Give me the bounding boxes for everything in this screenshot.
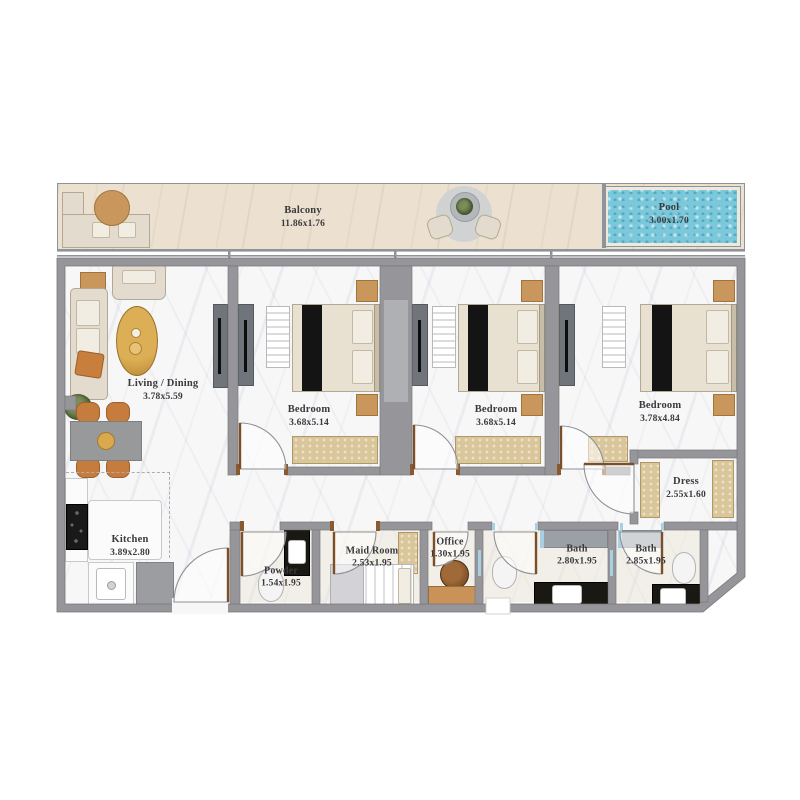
entry-door-arc: [174, 548, 228, 602]
room-label-kitchen: Kitchen 3.89x2.80: [110, 533, 150, 559]
balcony-window-band: [57, 184, 745, 258]
bedroom1-door-arc: [240, 423, 286, 469]
floor-plan-canvas: Balcony 11.86x1.76 Pool 3.00x1.70 Living…: [0, 0, 800, 800]
dress-door-arc: [584, 464, 634, 514]
room-label-bath-2: Bath 2.85x1.95: [626, 542, 666, 567]
bedroom2-door-arc: [414, 425, 458, 469]
room-label-balcony: Balcony 11.86x1.76: [281, 204, 325, 230]
room-label-bedroom-3: Bedroom 3.78x4.84: [639, 399, 682, 425]
room-label-bedroom-1: Bedroom 3.68x5.14: [288, 403, 331, 429]
room-label-pool: Pool 3.00x1.70: [649, 201, 689, 227]
room-label-office: Office 1.30x1.95: [430, 535, 470, 560]
bedroom3-door-arc: [561, 426, 604, 469]
room-label-dress: Dress 2.55x1.60: [666, 475, 706, 501]
room-label-bath-1: Bath 2.80x1.95: [557, 542, 597, 567]
door-arcs: [174, 423, 662, 602]
room-label-powder: Powder 1.54x1.95: [261, 564, 301, 589]
room-label-maid-room: Maid Room 2.53x1.95: [346, 544, 399, 569]
bath1-door-arc: [494, 532, 536, 574]
room-label-living-dining: Living / Dining 3.78x5.59: [128, 377, 199, 403]
room-label-bedroom-2: Bedroom 3.68x5.14: [475, 403, 518, 429]
